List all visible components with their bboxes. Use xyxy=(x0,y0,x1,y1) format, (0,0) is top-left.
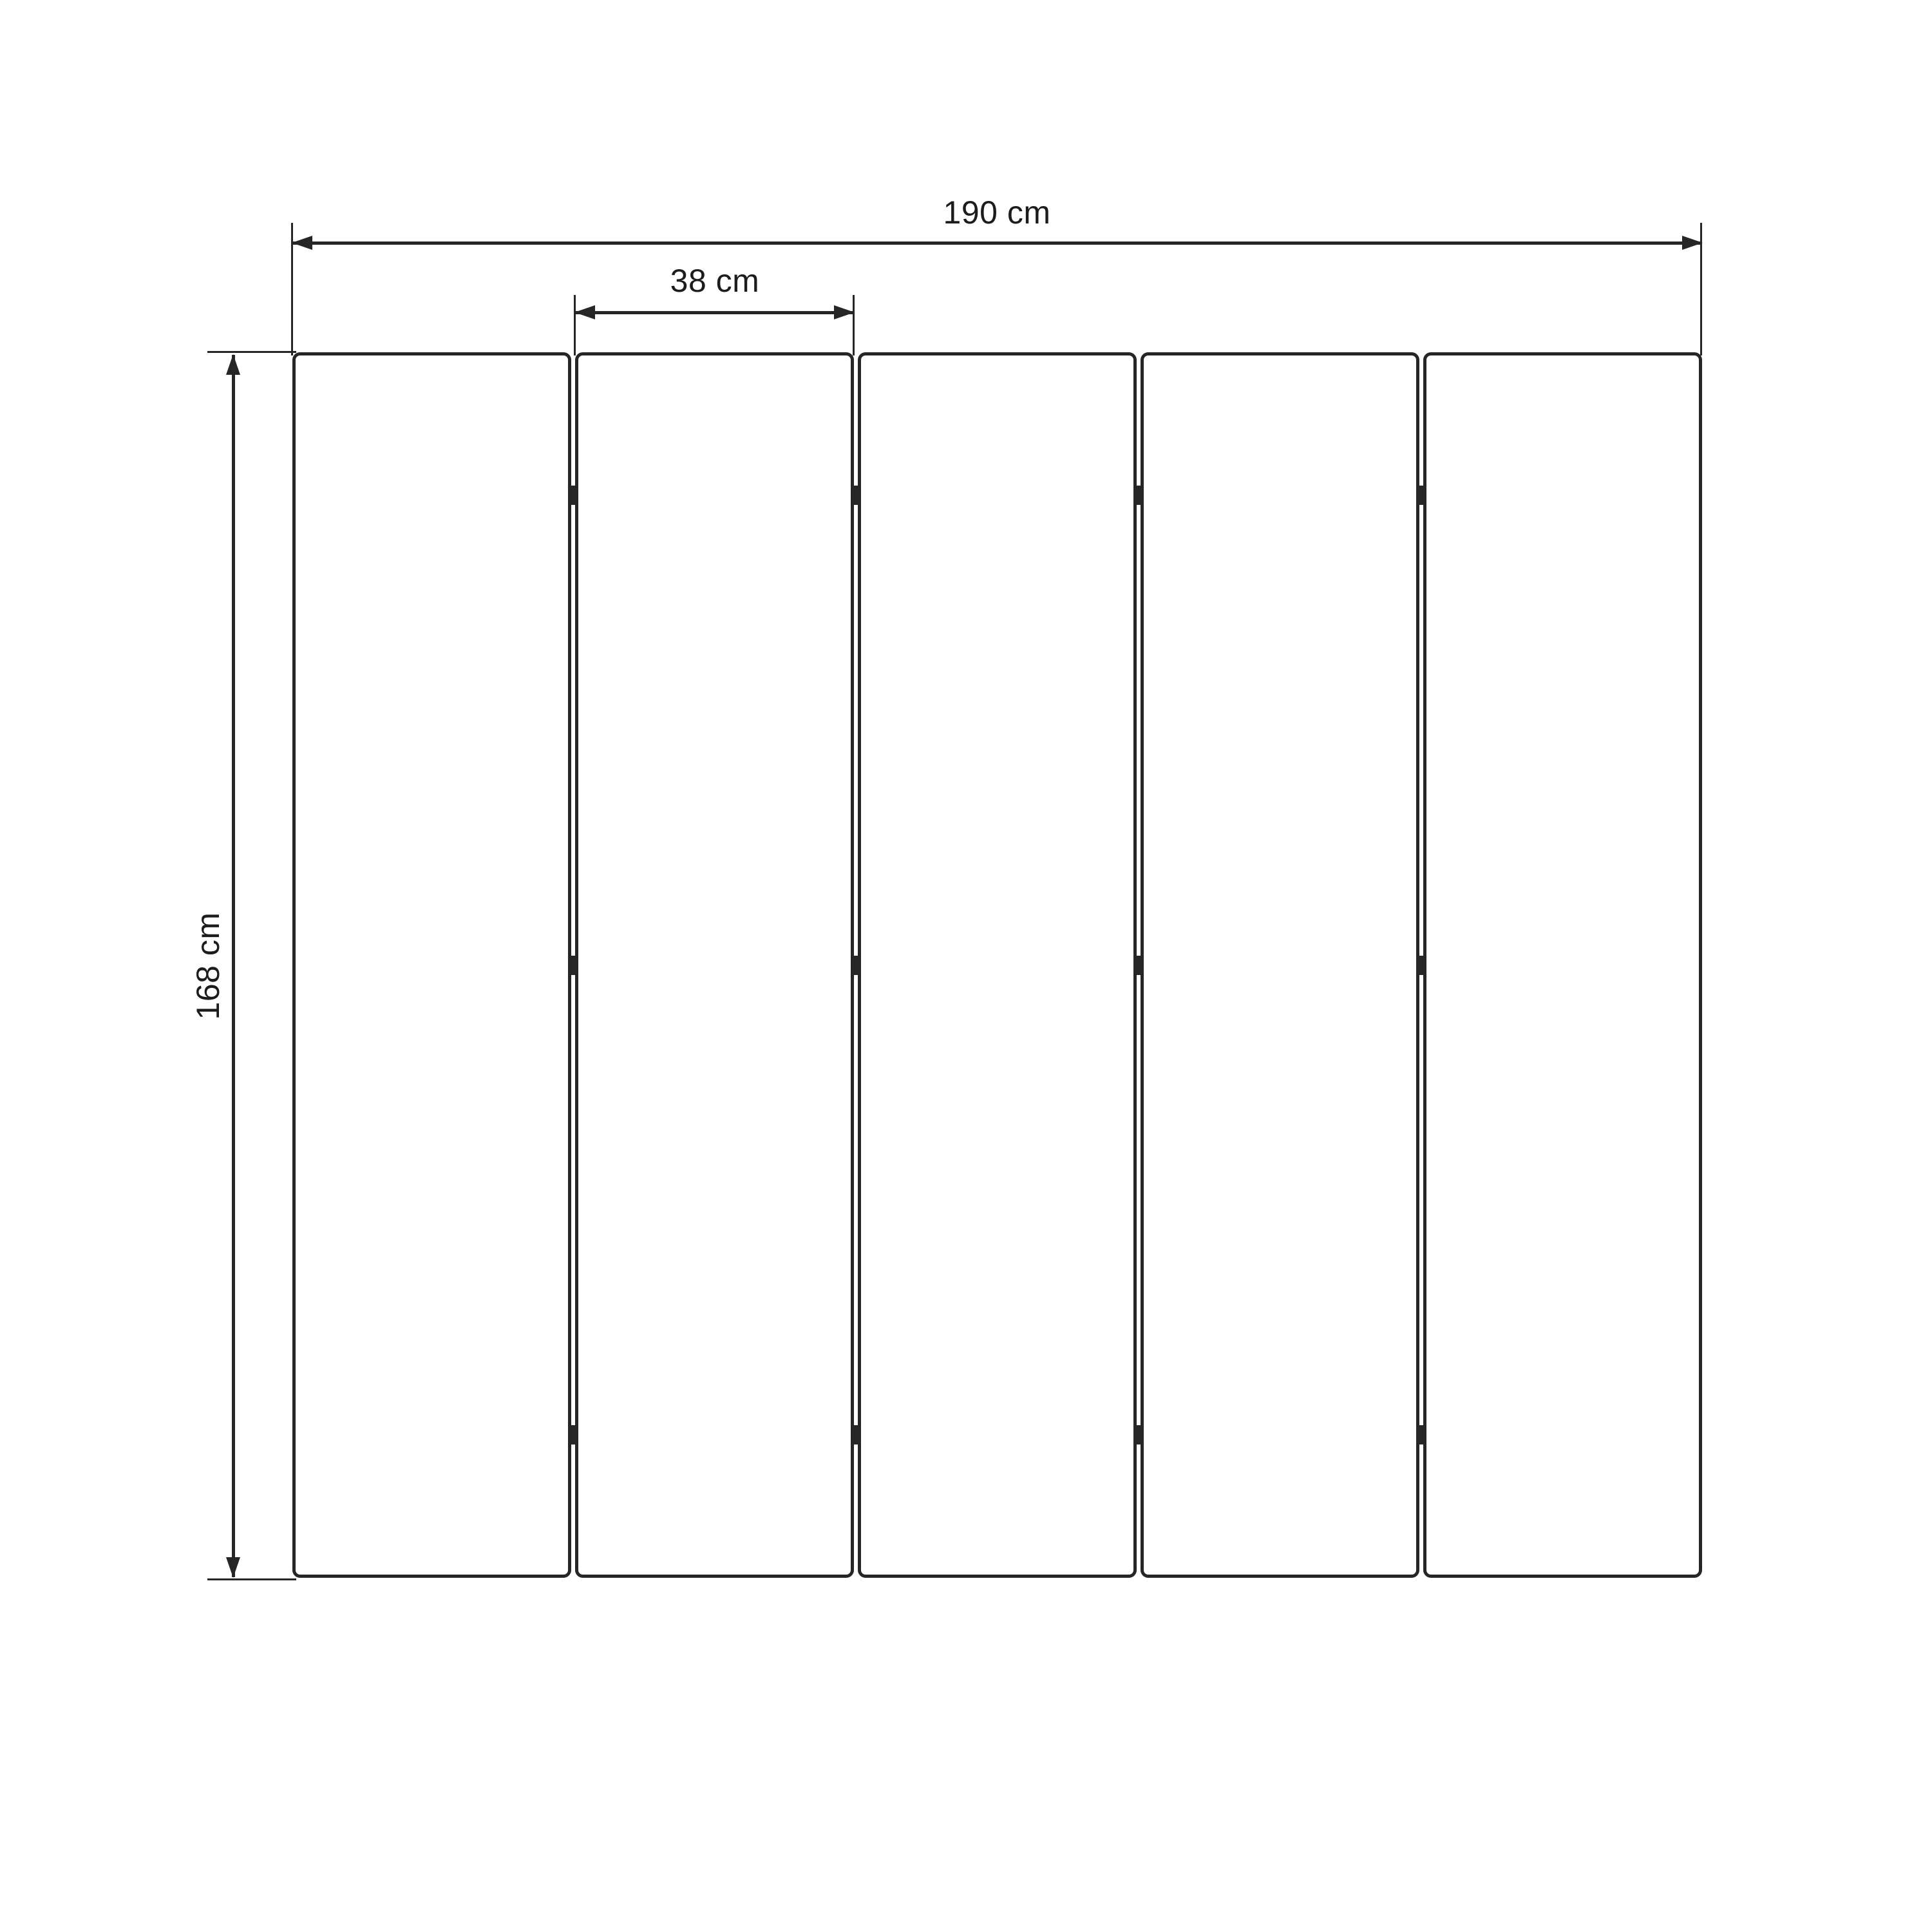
screen-panel xyxy=(575,352,854,1578)
height-dimension-line xyxy=(232,355,235,1577)
extension-line-panel-right xyxy=(853,295,855,355)
total-width-label: 190 cm xyxy=(868,194,1126,231)
height-label: 168 cm xyxy=(189,837,227,1095)
hinge xyxy=(851,956,861,975)
hinge xyxy=(568,1425,578,1444)
arrowhead-down-icon xyxy=(226,1557,240,1578)
screen-panel xyxy=(858,352,1137,1578)
extension-line-height-top xyxy=(207,351,296,353)
screen-panel xyxy=(292,352,571,1578)
extension-line-height-bottom xyxy=(207,1578,296,1580)
hinge xyxy=(568,956,578,975)
arrowhead-right-icon xyxy=(834,305,855,319)
folding-screen-panels xyxy=(292,352,1702,1578)
arrowhead-left-icon xyxy=(292,236,312,250)
extension-line-panel-left xyxy=(574,295,576,355)
panel-width-dimension-line xyxy=(575,311,854,314)
arrowhead-up-icon xyxy=(226,354,240,375)
hinge xyxy=(1416,956,1426,975)
hinge xyxy=(851,486,861,505)
hinge xyxy=(1133,486,1144,505)
total-width-dimension-line xyxy=(292,241,1702,245)
hinge xyxy=(1416,1425,1426,1444)
hinge xyxy=(1416,486,1426,505)
arrowhead-left-icon xyxy=(574,305,595,319)
arrowhead-right-icon xyxy=(1682,236,1703,250)
hinge xyxy=(1133,956,1144,975)
screen-panel xyxy=(1423,352,1702,1578)
hinge xyxy=(568,486,578,505)
hinge xyxy=(1133,1425,1144,1444)
screen-panel xyxy=(1141,352,1419,1578)
hinge xyxy=(851,1425,861,1444)
panel-width-label: 38 cm xyxy=(586,262,844,299)
dimension-drawing: 190 cm 38 cm 168 cm xyxy=(0,0,1932,1932)
